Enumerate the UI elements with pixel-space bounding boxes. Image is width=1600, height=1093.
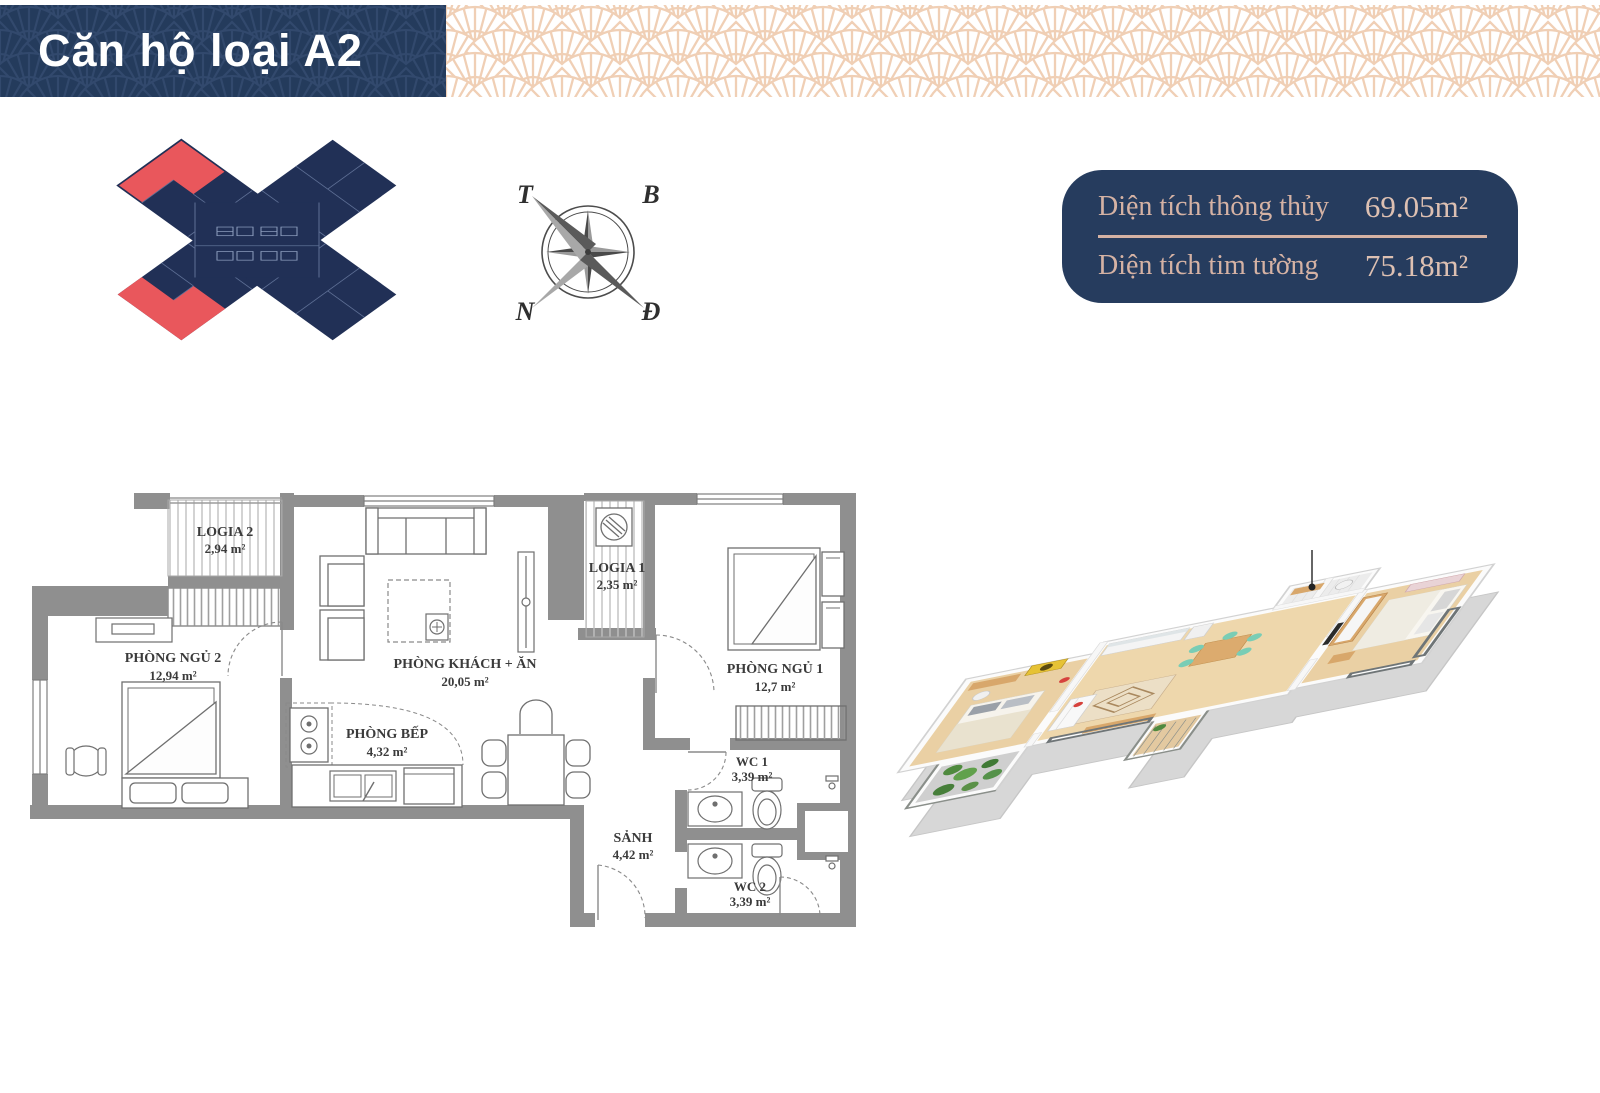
- room-area-kitchen: 4,32 m²: [367, 744, 408, 759]
- decorative-band: [446, 5, 1600, 97]
- sliding-panel: [518, 552, 534, 652]
- area-label: Diện tích thông thủy: [1098, 191, 1365, 223]
- bedroom2-chair: [66, 746, 106, 776]
- building-core: [195, 203, 319, 278]
- title-banner: Căn hộ loại A2: [0, 5, 446, 97]
- area-row-tim-tuong: Diện tích tim tường 75.18m²: [1062, 238, 1518, 294]
- room-area-logia2: 2,94 m²: [205, 541, 246, 556]
- room-area-wc1: 3,39 m²: [732, 769, 773, 784]
- room-label-kitchen: PHÒNG BẾP: [346, 725, 429, 742]
- compass-letter-D: Đ: [641, 297, 661, 326]
- room-area-living: 20,05 m²: [441, 674, 488, 689]
- ac-ledge: [96, 618, 172, 642]
- bedroom1-bed: [728, 548, 844, 650]
- room-label-logia2: LOGIA 2: [197, 525, 253, 540]
- room-label-wc1: WC 1: [736, 754, 768, 769]
- room-label-living: PHÒNG KHÁCH + ĂN: [394, 655, 537, 672]
- apartment-3d-render: [880, 462, 1580, 892]
- island-table: [388, 580, 450, 642]
- dining-table: [482, 700, 590, 805]
- area-row-thong-thuy: Diện tích thông thủy 69.05m²: [1062, 179, 1518, 235]
- area-label: Diện tích tim tường: [1098, 250, 1365, 282]
- building-wings: [118, 140, 397, 341]
- area-info-box: Diện tích thông thủy 69.05m² Diện tích t…: [1062, 170, 1518, 303]
- sofa: [366, 508, 486, 554]
- room-label-wc2: WC 2: [734, 879, 766, 894]
- bedroom1-wardrobe: [736, 706, 846, 740]
- room-label-bedroom2: PHÒNG NGỦ 2: [125, 649, 221, 666]
- washing-machine: [596, 508, 632, 546]
- room-area-logia1: 2,35 m²: [597, 577, 638, 592]
- room-area-bedroom1: 12,7 m²: [755, 679, 796, 694]
- area-value: 75.18m²: [1365, 248, 1468, 284]
- page-title: Căn hộ loại A2: [38, 5, 363, 97]
- room-label-logia1: LOGIA 1: [589, 561, 645, 576]
- room-label-bedroom1: PHÒNG NGỦ 1: [727, 660, 823, 677]
- compass-rose: T B N Đ: [508, 172, 668, 332]
- compass-letter-B: B: [641, 180, 659, 209]
- page: Căn hộ loại A2: [0, 0, 1600, 1093]
- area-value: 69.05m²: [1365, 189, 1468, 225]
- armchairs: [320, 556, 364, 660]
- floor-plan-2d: LOGIA 2 2,94 m² PHÒNG NGỦ 2 12,94 m² PHÒ…: [30, 460, 870, 930]
- fan-pattern: [446, 5, 1600, 97]
- building-site-plan: [92, 132, 422, 354]
- room-area-hall: 4,42 m²: [613, 847, 654, 862]
- wc-niche: [805, 811, 848, 852]
- room-area-bedroom2: 12,94 m²: [149, 668, 196, 683]
- room-area-wc2: 3,39 m²: [730, 894, 771, 909]
- bedroom2-bed: [122, 682, 248, 808]
- compass-letter-N: N: [515, 297, 536, 326]
- compass-letter-T: T: [517, 180, 534, 209]
- room-label-hall: SẢNH: [614, 829, 653, 846]
